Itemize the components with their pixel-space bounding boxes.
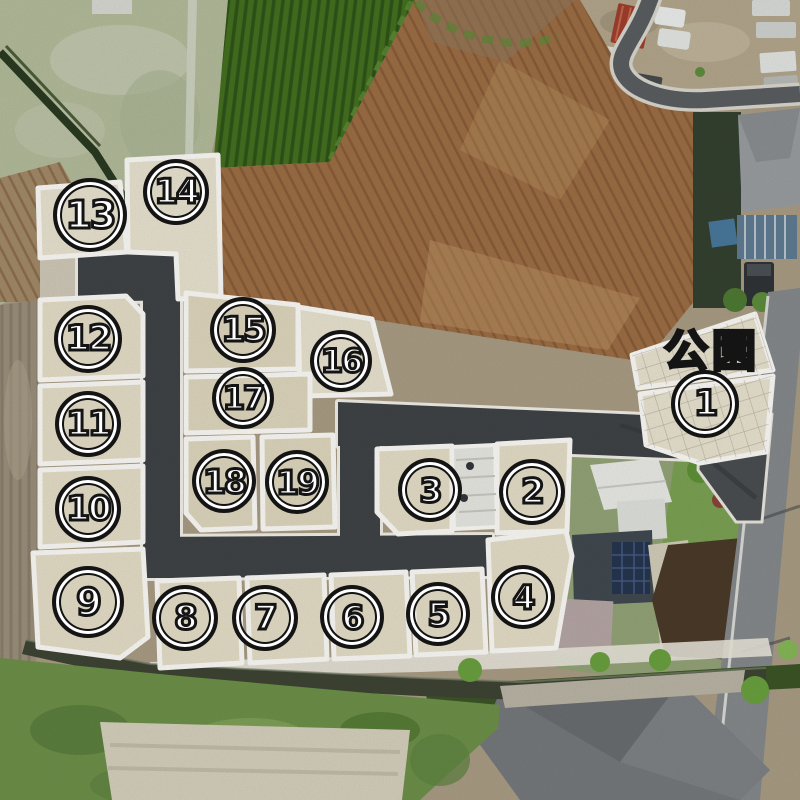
lot-marker-10[interactable]: 10 — [55, 476, 121, 542]
park-label: 公園 — [664, 315, 760, 379]
lot-marker-2[interactable]: 2 — [499, 459, 565, 525]
lot-marker-4[interactable]: 4 — [491, 565, 555, 629]
aerial-lot-map: 公園 12345678910111213141516171819 — [0, 0, 800, 800]
lot-marker-17[interactable]: 17 — [212, 367, 274, 429]
lot-marker-7[interactable]: 7 — [232, 585, 298, 651]
lot-marker-18[interactable]: 18 — [192, 449, 256, 513]
lot-marker-3[interactable]: 3 — [398, 458, 462, 522]
lot-marker-1[interactable]: 1 — [671, 370, 739, 438]
lot-marker-9[interactable]: 9 — [52, 566, 124, 638]
lot-marker-6[interactable]: 6 — [320, 585, 384, 649]
lot-marker-12[interactable]: 12 — [54, 305, 122, 373]
lot-marker-14[interactable]: 14 — [143, 159, 209, 225]
lot-marker-19[interactable]: 19 — [265, 450, 329, 514]
lot-marker-16[interactable]: 16 — [310, 330, 372, 392]
lot-marker-15[interactable]: 15 — [210, 297, 276, 363]
lot-marker-11[interactable]: 11 — [55, 391, 121, 457]
lot-marker-5[interactable]: 5 — [406, 582, 470, 646]
lot-marker-8[interactable]: 8 — [152, 585, 218, 651]
lot-marker-13[interactable]: 13 — [53, 178, 127, 252]
